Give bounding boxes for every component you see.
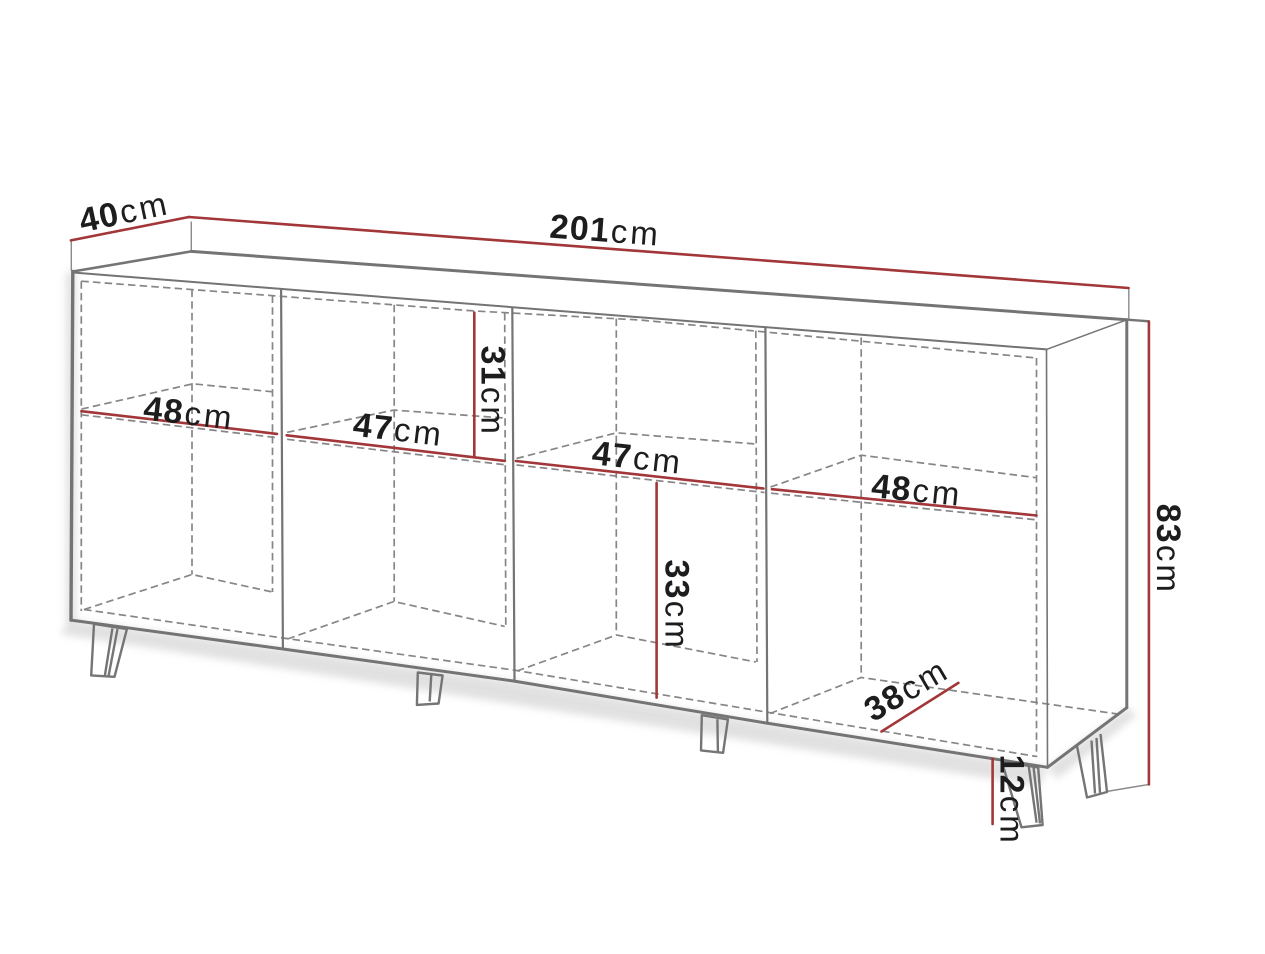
svg-text:12cm: 12cm (992, 755, 1030, 846)
svg-text:33cm: 33cm (658, 560, 696, 651)
svg-text:83cm: 83cm (1149, 504, 1187, 595)
svg-text:31cm: 31cm (474, 346, 512, 437)
